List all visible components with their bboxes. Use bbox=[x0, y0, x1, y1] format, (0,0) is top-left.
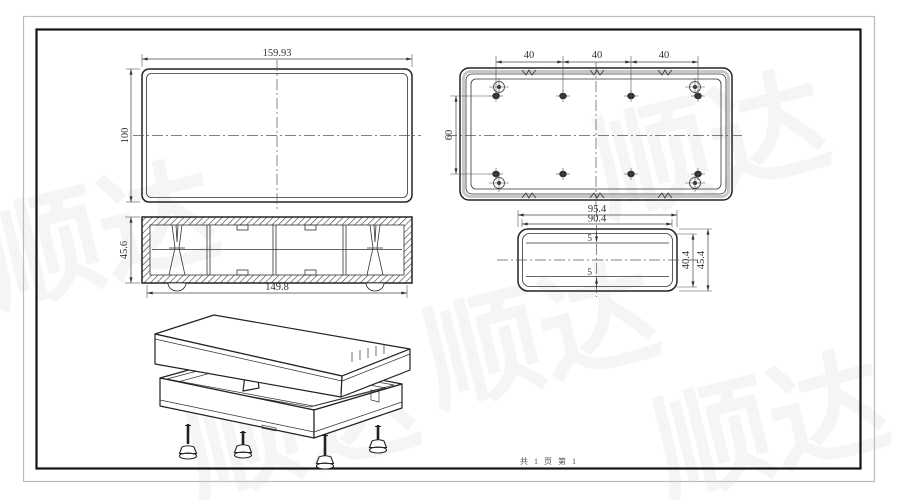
page-info-text: 共 1 页 第 1 bbox=[520, 456, 578, 466]
dim-top-width: 159.93 bbox=[263, 48, 292, 59]
dim-hole-rows: 60 bbox=[444, 130, 455, 141]
dim-hole-col-1: 40 bbox=[524, 50, 535, 61]
section-view: 45.6 149.8 bbox=[119, 217, 412, 298]
hole-pattern-view: 40 40 40 60 bbox=[444, 50, 742, 206]
dim-end-outer-height: 45.4 bbox=[696, 250, 707, 269]
drawing-sheet: 顺达 顺达 顺达 顺达 顺达 bbox=[0, 0, 900, 500]
internal-ribs bbox=[207, 225, 346, 275]
end-view: 95.4 90.4 5 5 40.4 45.4 bbox=[497, 204, 712, 297]
dim-section-width: 149.8 bbox=[265, 282, 289, 293]
mounting-holes bbox=[489, 90, 705, 180]
top-view: 159.93 100 bbox=[120, 48, 421, 211]
dim-groove-top: 5 bbox=[587, 234, 592, 244]
sheet-frame bbox=[24, 17, 875, 482]
isometric-view bbox=[155, 315, 410, 469]
dim-end-inner-width: 90.4 bbox=[588, 214, 607, 225]
dim-top-height: 100 bbox=[120, 128, 131, 144]
dim-hole-col-2: 40 bbox=[592, 50, 603, 61]
iso-rubber-feet bbox=[180, 440, 387, 469]
dim-hole-col-3: 40 bbox=[659, 50, 670, 61]
dim-section-height: 45.6 bbox=[119, 241, 130, 259]
corner-boss bbox=[489, 78, 705, 192]
dim-end-inner-height: 40.4 bbox=[681, 250, 692, 269]
drawing-canvas: 159.93 100 bbox=[0, 0, 900, 500]
dim-groove-bottom: 5 bbox=[587, 268, 592, 278]
